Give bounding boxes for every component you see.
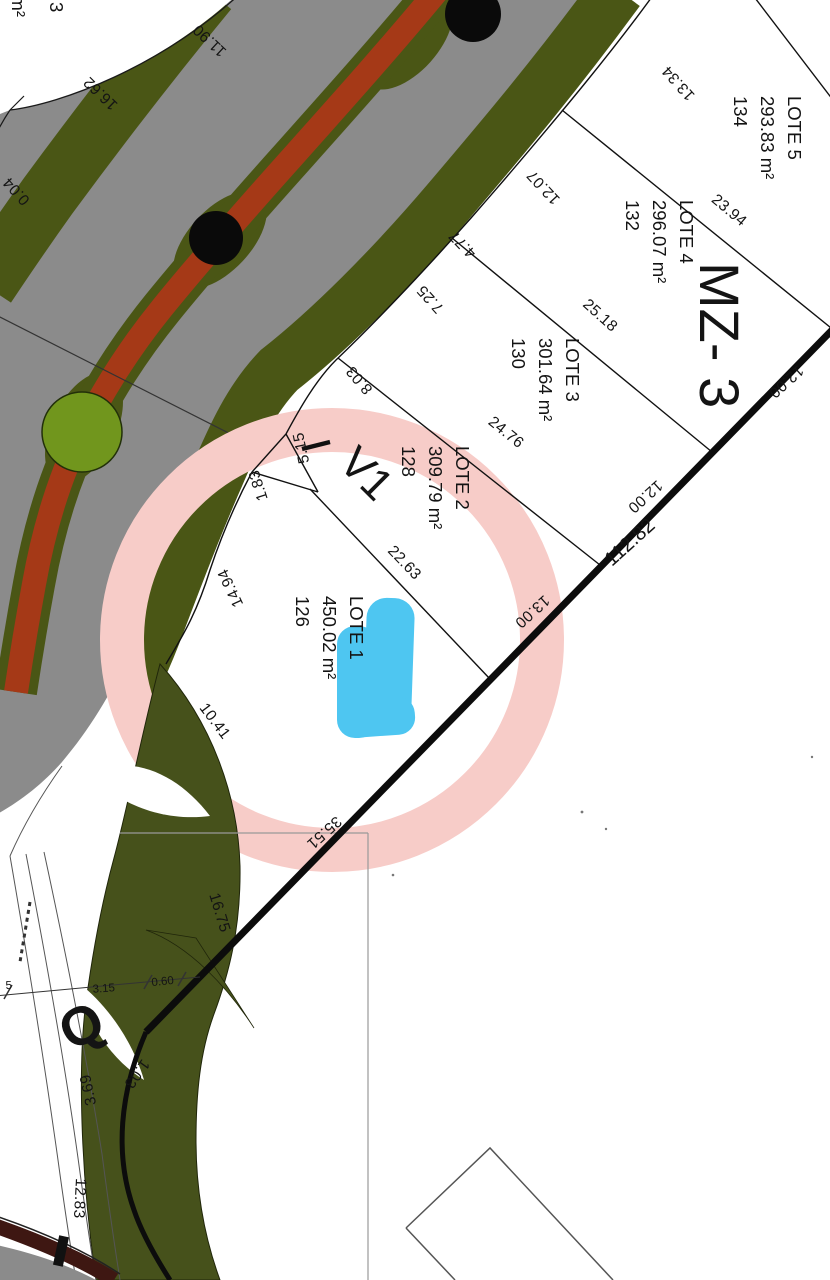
lot-name: LOTE 1	[346, 596, 367, 660]
dim-0-60: 0.60	[151, 975, 175, 989]
dim-1-83: 1.83	[246, 468, 272, 503]
svg-text:MZ- 3: MZ- 3	[688, 262, 751, 408]
lot-name: LOTE 2	[452, 446, 473, 510]
block-label: MZ- 3	[688, 262, 751, 408]
dim-12-07: 12.07	[524, 167, 564, 208]
park-green-area	[78, 664, 254, 1280]
lot-area: 450.02 m²	[319, 596, 340, 679]
lot-label-lote5: LOTE 5 293.83 m² 134	[730, 96, 805, 179]
dim-14-94: 14.94	[215, 566, 247, 610]
lot-number: 3	[46, 2, 67, 12]
lot-label-lote4: LOTE 4 296.07 m² 132	[622, 200, 697, 283]
dim-24-76: 24.76	[485, 413, 527, 452]
lot-name: LOTE 3	[562, 338, 583, 402]
lot-number: 134	[730, 96, 751, 127]
lot-name: LOTE 5	[784, 96, 805, 160]
dim-25-18: 25.18	[579, 296, 620, 336]
dim-13-34: 13.34	[659, 62, 699, 103]
plan-canvas: LOTE 5 293.83 m² 134 LOTE 4 296.07 m² 13…	[0, 0, 830, 1280]
lot-number: 128	[398, 446, 419, 477]
lot-name: LOTE 4	[676, 200, 697, 264]
dim-3-15: 3.15	[92, 982, 115, 996]
dim-8-03: 8.03	[343, 363, 376, 398]
adjacent-building-outline	[406, 1148, 613, 1280]
lot-area: 296.07 m²	[649, 200, 670, 283]
dim-22-63: 22.63	[384, 542, 424, 583]
dim-12-83: 12.83	[70, 1178, 89, 1219]
dim-7-25: 7.25	[414, 282, 448, 317]
dim-112-82: 112.82	[600, 514, 659, 570]
site-plan: LOTE 5 293.83 m² 134 LOTE 4 296.07 m² 13…	[0, 0, 830, 1280]
dim-5: 5	[5, 980, 12, 992]
dotted-survey-line	[20, 902, 30, 962]
lot-area: 5 m²	[8, 0, 29, 17]
lot-area: 301.64 m²	[535, 338, 556, 421]
dim-23-94: 23.94	[708, 191, 750, 230]
lot-label-lote2: LOTE 2 309.79 m² 128	[398, 446, 473, 529]
glorieta-circle	[42, 392, 122, 472]
lot-number: 126	[292, 596, 313, 627]
dim-12-00-b: 12.00	[765, 362, 806, 402]
lot-area: 293.83 m²	[757, 96, 778, 179]
lot-number: 132	[622, 200, 643, 231]
lot-area: 309.79 m²	[425, 446, 446, 529]
lot-number: 130	[508, 338, 529, 369]
lot-label-lote3: LOTE 3 301.64 m² 130	[508, 338, 583, 421]
tree-icon	[189, 211, 243, 265]
